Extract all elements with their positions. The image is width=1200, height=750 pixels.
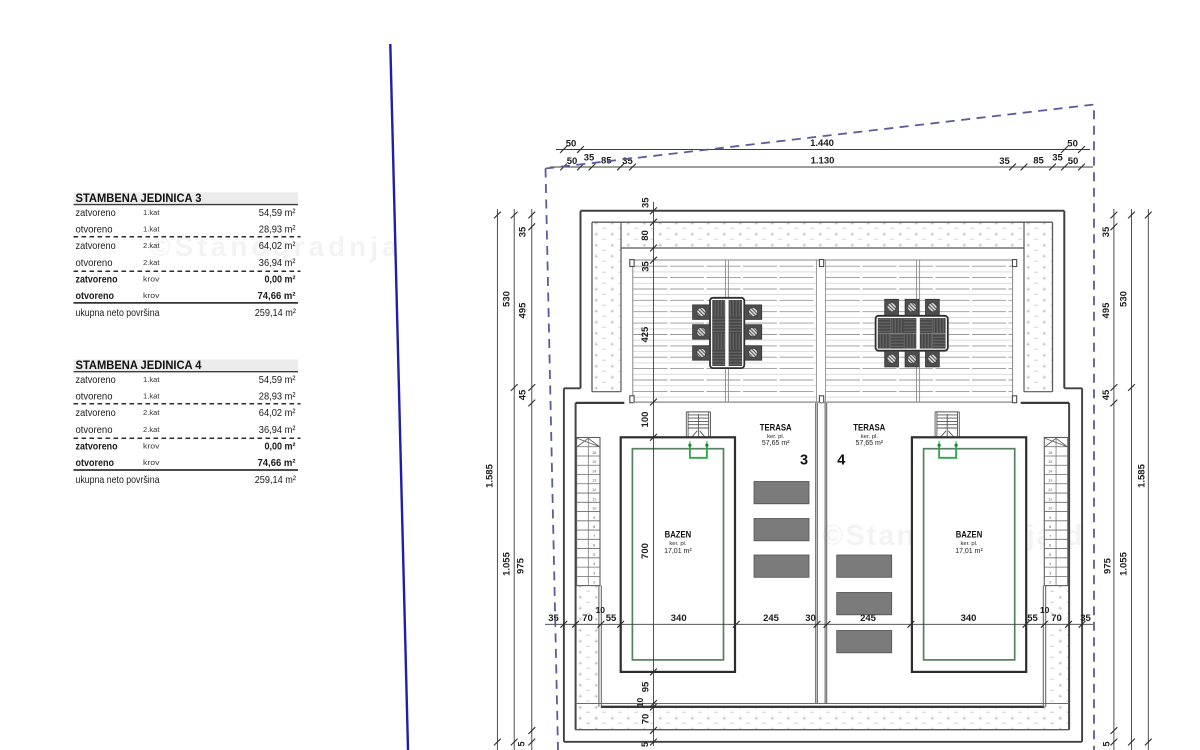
svg-text:35: 35 bbox=[584, 153, 595, 164]
svg-text:14: 14 bbox=[1048, 470, 1052, 474]
svg-text:70: 70 bbox=[1051, 613, 1062, 624]
svg-text:55: 55 bbox=[1027, 613, 1038, 624]
svg-text:35: 35 bbox=[999, 156, 1010, 167]
svg-text:50: 50 bbox=[1067, 139, 1078, 150]
svg-text:1.585: 1.585 bbox=[485, 463, 496, 487]
svg-text:5: 5 bbox=[593, 553, 595, 557]
svg-text:57,65 m²: 57,65 m² bbox=[855, 440, 883, 447]
svg-text:zatvoreno: zatvoreno bbox=[76, 375, 116, 386]
svg-text:STAMBENA JEDINICA 3: STAMBENA JEDINICA 3 bbox=[76, 191, 202, 205]
svg-text:700: 700 bbox=[640, 543, 651, 559]
svg-text:otvoreno: otvoreno bbox=[76, 458, 115, 469]
svg-text:975: 975 bbox=[1102, 557, 1113, 574]
svg-text:35: 35 bbox=[640, 197, 651, 208]
svg-text:245: 245 bbox=[763, 613, 780, 624]
svg-text:74,66 m²: 74,66 m² bbox=[258, 458, 296, 469]
svg-text:zatvoreno: zatvoreno bbox=[76, 441, 118, 452]
svg-text:2: 2 bbox=[1049, 581, 1051, 585]
svg-text:zatvoreno: zatvoreno bbox=[76, 274, 118, 285]
svg-text:krov: krov bbox=[143, 291, 160, 300]
svg-text:28,93 m²: 28,93 m² bbox=[259, 224, 296, 235]
svg-text:krov: krov bbox=[143, 441, 160, 450]
svg-text:otvoreno: otvoreno bbox=[76, 291, 115, 302]
svg-text:9: 9 bbox=[1049, 516, 1051, 520]
svg-text:krov: krov bbox=[143, 274, 160, 283]
svg-text:70: 70 bbox=[582, 613, 593, 624]
svg-text:15: 15 bbox=[592, 460, 596, 464]
svg-text:11: 11 bbox=[1048, 497, 1052, 501]
svg-text:74,66 m²: 74,66 m² bbox=[258, 291, 296, 302]
svg-text:495: 495 bbox=[518, 302, 529, 319]
svg-text:10: 10 bbox=[596, 605, 606, 615]
svg-text:50: 50 bbox=[1068, 156, 1079, 167]
svg-text:10: 10 bbox=[1040, 605, 1050, 615]
svg-text:10: 10 bbox=[1048, 507, 1052, 511]
svg-text:9: 9 bbox=[593, 516, 595, 520]
svg-text:ker. pl.: ker. pl. bbox=[960, 541, 977, 547]
svg-text:35: 35 bbox=[518, 226, 529, 237]
svg-text:2: 2 bbox=[593, 581, 595, 585]
svg-text:7: 7 bbox=[593, 534, 595, 538]
svg-text:35: 35 bbox=[1080, 613, 1091, 624]
svg-text:85: 85 bbox=[1033, 156, 1044, 167]
svg-text:otvoreno: otvoreno bbox=[76, 425, 113, 436]
svg-text:BAZEN: BAZEN bbox=[956, 530, 983, 540]
svg-text:80: 80 bbox=[640, 230, 651, 241]
svg-text:5: 5 bbox=[517, 741, 527, 746]
svg-text:17,01 m²: 17,01 m² bbox=[664, 548, 692, 555]
svg-text:4: 4 bbox=[837, 452, 845, 468]
svg-text:zatvoreno: zatvoreno bbox=[76, 241, 116, 252]
svg-text:35: 35 bbox=[1052, 153, 1063, 164]
svg-text:50: 50 bbox=[566, 139, 577, 150]
svg-text:3: 3 bbox=[800, 452, 808, 468]
svg-text:1.440: 1.440 bbox=[810, 138, 834, 149]
svg-text:100: 100 bbox=[640, 412, 651, 428]
svg-text:3: 3 bbox=[593, 571, 595, 575]
svg-text:64,02 m²: 64,02 m² bbox=[259, 408, 296, 419]
svg-text:28,93 m²: 28,93 m² bbox=[259, 391, 296, 402]
svg-text:5: 5 bbox=[1102, 741, 1112, 746]
svg-text:35: 35 bbox=[622, 156, 633, 167]
svg-text:340: 340 bbox=[961, 613, 977, 624]
svg-text:1.585: 1.585 bbox=[1137, 463, 1148, 487]
svg-text:1.kat: 1.kat bbox=[143, 391, 160, 400]
svg-text:54,59 m²: 54,59 m² bbox=[259, 208, 296, 219]
svg-text:zatvoreno: zatvoreno bbox=[76, 408, 116, 419]
svg-text:11: 11 bbox=[592, 497, 596, 501]
svg-text:55: 55 bbox=[606, 613, 617, 624]
svg-text:245: 245 bbox=[860, 613, 877, 624]
svg-text:BAZEN: BAZEN bbox=[665, 530, 692, 540]
svg-text:6: 6 bbox=[593, 544, 595, 548]
svg-text:340: 340 bbox=[671, 613, 687, 624]
svg-text:12: 12 bbox=[1048, 488, 1052, 492]
svg-text:30: 30 bbox=[805, 613, 816, 624]
svg-text:8: 8 bbox=[593, 525, 595, 529]
svg-text:259,14 m²: 259,14 m² bbox=[255, 308, 297, 319]
svg-text:495: 495 bbox=[1101, 302, 1112, 319]
svg-text:45: 45 bbox=[1101, 389, 1112, 400]
svg-text:425: 425 bbox=[640, 326, 651, 343]
svg-text:15: 15 bbox=[1048, 460, 1052, 464]
svg-text:4: 4 bbox=[1049, 562, 1051, 566]
svg-text:13: 13 bbox=[592, 479, 596, 483]
svg-text:0,00 m²: 0,00 m² bbox=[265, 441, 296, 452]
svg-text:6: 6 bbox=[1049, 544, 1051, 548]
svg-text:TERASA: TERASA bbox=[760, 422, 792, 432]
svg-text:1.055: 1.055 bbox=[1119, 551, 1130, 575]
svg-text:4: 4 bbox=[593, 562, 595, 566]
svg-text:10: 10 bbox=[592, 507, 596, 511]
svg-text:8: 8 bbox=[1049, 525, 1051, 529]
svg-text:STAMBENA JEDINICA 4: STAMBENA JEDINICA 4 bbox=[76, 358, 202, 372]
svg-text:12: 12 bbox=[592, 488, 596, 492]
svg-text:otvoreno: otvoreno bbox=[76, 224, 113, 235]
svg-text:2.kat: 2.kat bbox=[143, 241, 160, 250]
svg-text:259,14 m²: 259,14 m² bbox=[255, 475, 297, 486]
svg-text:0,00 m²: 0,00 m² bbox=[265, 274, 296, 285]
svg-text:5: 5 bbox=[1049, 553, 1051, 557]
svg-text:ker. pl.: ker. pl. bbox=[767, 434, 784, 440]
svg-text:otvoreno: otvoreno bbox=[76, 391, 113, 402]
svg-text:ukupna neto površina: ukupna neto površina bbox=[76, 308, 160, 319]
svg-text:5: 5 bbox=[640, 742, 650, 747]
svg-text:54,59 m²: 54,59 m² bbox=[259, 375, 296, 386]
svg-text:TERASA: TERASA bbox=[853, 422, 885, 432]
svg-text:35: 35 bbox=[640, 261, 651, 272]
svg-text:1.kat: 1.kat bbox=[143, 224, 160, 233]
svg-text:36,94 m²: 36,94 m² bbox=[259, 425, 296, 436]
svg-text:ukupna neto površina: ukupna neto površina bbox=[76, 475, 160, 486]
svg-text:1.055: 1.055 bbox=[501, 551, 512, 575]
svg-text:zatvoreno: zatvoreno bbox=[76, 208, 116, 219]
svg-text:1.kat: 1.kat bbox=[143, 208, 160, 217]
svg-text:ker. pl.: ker. pl. bbox=[861, 434, 878, 440]
svg-text:17,01 m²: 17,01 m² bbox=[955, 548, 983, 555]
svg-text:95: 95 bbox=[641, 681, 652, 692]
svg-text:1.kat: 1.kat bbox=[143, 375, 160, 384]
svg-text:ker. pl.: ker. pl. bbox=[669, 541, 686, 547]
svg-text:35: 35 bbox=[548, 613, 559, 624]
svg-text:530: 530 bbox=[1119, 291, 1130, 307]
svg-text:otvoreno: otvoreno bbox=[76, 258, 113, 269]
svg-text:13: 13 bbox=[1048, 479, 1052, 483]
svg-text:2.kat: 2.kat bbox=[143, 258, 160, 267]
svg-text:16: 16 bbox=[1048, 451, 1052, 455]
svg-text:16: 16 bbox=[592, 451, 596, 455]
svg-text:530: 530 bbox=[501, 291, 512, 307]
svg-text:64,02 m²: 64,02 m² bbox=[259, 241, 296, 252]
svg-text:35: 35 bbox=[1101, 226, 1112, 237]
svg-text:krov: krov bbox=[143, 458, 160, 467]
svg-text:975: 975 bbox=[516, 557, 527, 574]
svg-text:36,94 m²: 36,94 m² bbox=[259, 258, 296, 269]
svg-text:70: 70 bbox=[641, 714, 652, 725]
svg-text:14: 14 bbox=[592, 470, 596, 474]
svg-text:3: 3 bbox=[1049, 571, 1051, 575]
svg-text:2.kat: 2.kat bbox=[143, 425, 160, 434]
svg-text:57,65 m²: 57,65 m² bbox=[762, 440, 790, 447]
svg-text:10: 10 bbox=[635, 698, 645, 708]
svg-text:45: 45 bbox=[518, 389, 529, 400]
svg-text:1.130: 1.130 bbox=[811, 156, 835, 167]
svg-text:2.kat: 2.kat bbox=[143, 408, 160, 417]
svg-text:7: 7 bbox=[1049, 534, 1051, 538]
